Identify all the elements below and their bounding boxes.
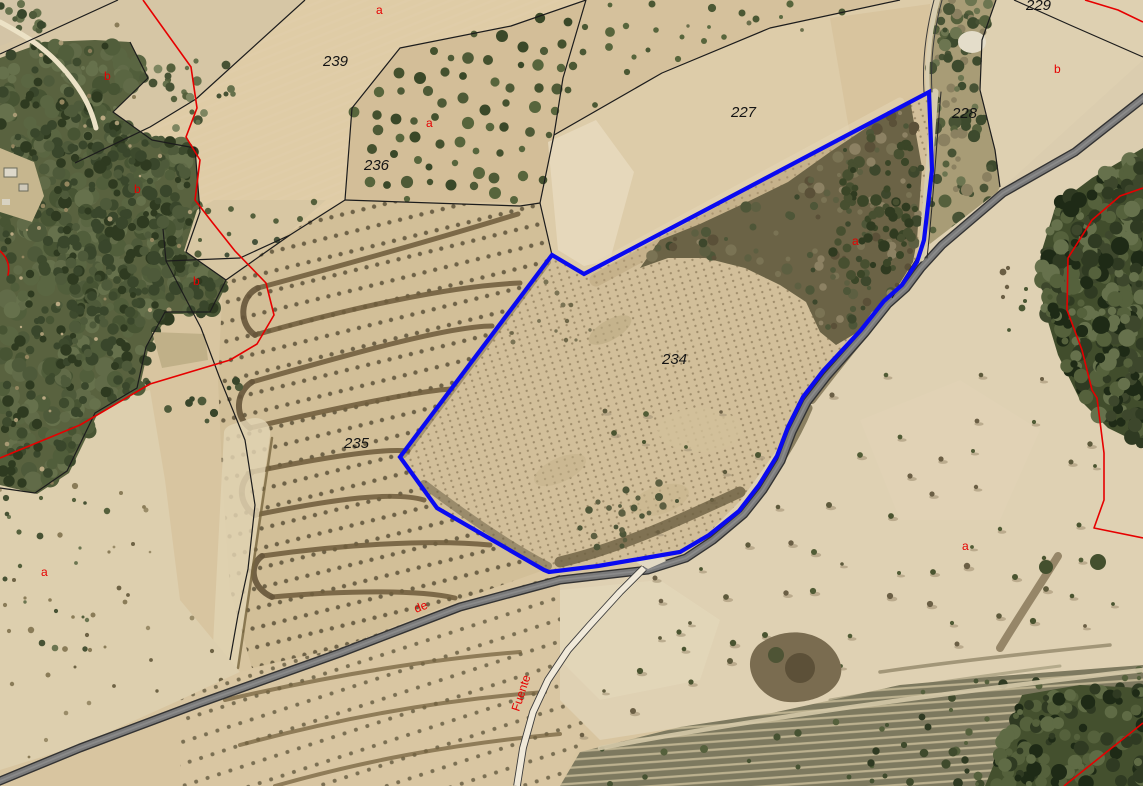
svg-text:b: b bbox=[193, 274, 200, 288]
svg-text:b: b bbox=[1054, 62, 1061, 76]
svg-text:a: a bbox=[376, 3, 383, 17]
svg-text:228: 228 bbox=[951, 105, 978, 122]
svg-text:a: a bbox=[41, 565, 48, 579]
svg-text:234: 234 bbox=[661, 351, 687, 368]
svg-text:229: 229 bbox=[1025, 0, 1052, 14]
svg-text:235: 235 bbox=[343, 435, 370, 452]
svg-text:236: 236 bbox=[363, 157, 390, 174]
svg-text:a: a bbox=[426, 116, 433, 130]
svg-text:239: 239 bbox=[322, 53, 349, 70]
svg-text:227: 227 bbox=[730, 104, 757, 121]
svg-text:a: a bbox=[962, 539, 969, 553]
svg-text:a: a bbox=[852, 234, 859, 248]
svg-text:b: b bbox=[104, 69, 111, 83]
svg-text:b: b bbox=[134, 182, 141, 196]
